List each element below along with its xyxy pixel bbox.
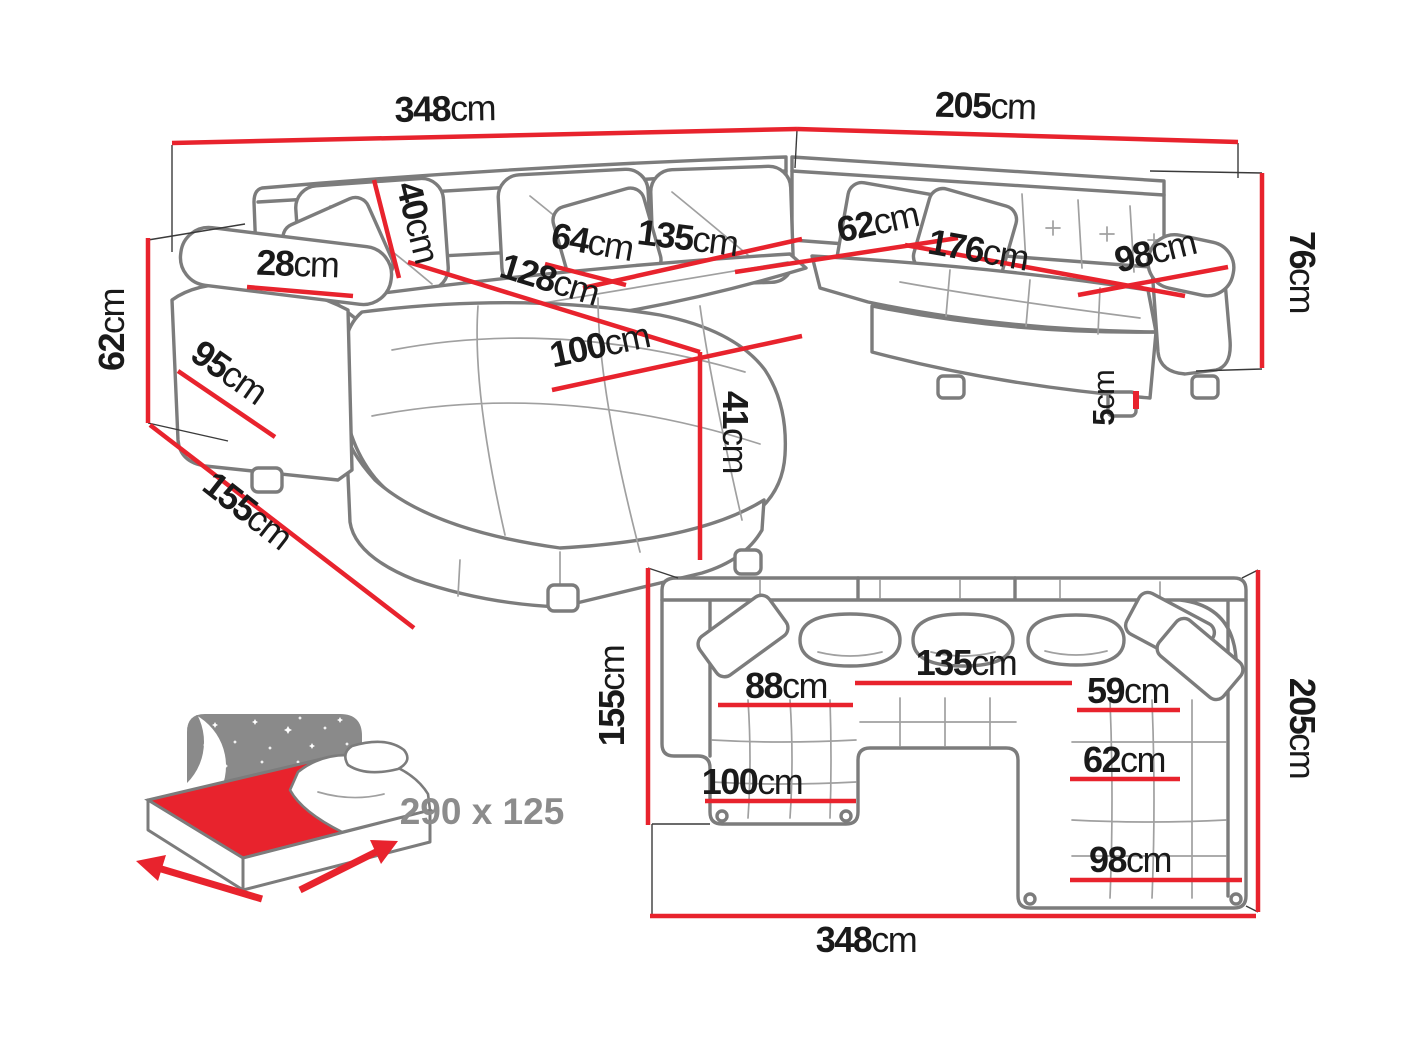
dim-top-left-depth-label: 155cm (591, 646, 632, 747)
sofa-dimensions-diagram: 348cm 205cm 76cm 62cm 155cm 95cm 28cm 40… (0, 0, 1408, 1056)
dim-side-leg-height-label: 5cm (1086, 370, 1121, 426)
dim-top-center-seat-width-label: 135cm (916, 642, 1017, 683)
dim-top-left-chaise-width-label: 100cm (702, 761, 803, 802)
dim-top-right-seat-width-label: 59cm (1087, 670, 1169, 711)
dim-side-arm-height-label: 62cm (91, 289, 132, 371)
sleeping-area-size-label: 290 x 125 (400, 791, 565, 832)
dim-top-right-chaise-width-label: 98cm (1089, 839, 1171, 880)
dim-top-total-width-label: 348cm (816, 919, 917, 960)
dim-side-total-width-label: 348cm (394, 87, 495, 130)
dim-side-left-depth-label: 155cm (195, 463, 299, 557)
dim-top-right-depth-label: 205cm (1282, 678, 1323, 779)
pillow (345, 742, 407, 772)
dim-side-right-depth-label: 205cm (935, 84, 1037, 128)
dim-top-right-seat-depth-label: 62cm (1083, 739, 1165, 780)
dim-side-back-height-label: 76cm (1282, 231, 1323, 313)
dim-side-total-width-line (172, 129, 797, 143)
dim-side-seat-height-label: 41cm (715, 391, 756, 473)
dim-top-left-seat-width-label: 88cm (745, 665, 827, 706)
sleeper-function-icon: 290 x 125 (88, 684, 564, 899)
dim-side-right-depth-line (797, 129, 1238, 142)
dim-side-arm-width-label: 28cm (256, 242, 339, 286)
